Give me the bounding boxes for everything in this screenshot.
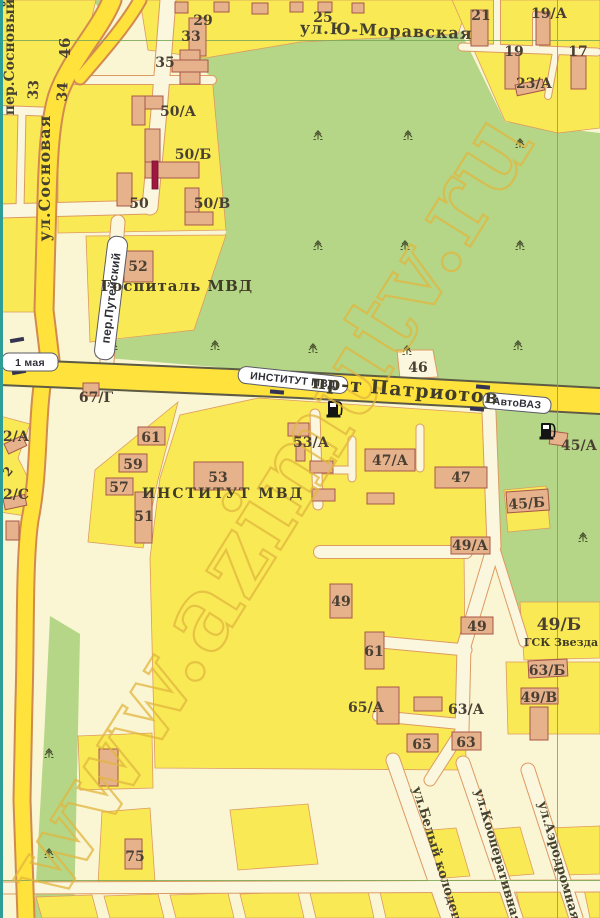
label-25: 25 (313, 10, 332, 26)
building (175, 2, 188, 13)
label-45a: 45/А (561, 438, 598, 454)
label-47a: 47/А (372, 453, 409, 469)
label-59: 59 (123, 457, 142, 473)
block-bottom-strip (240, 892, 304, 918)
label-75: 75 (125, 849, 144, 865)
label-33: 33 (181, 29, 200, 45)
block-bottom-strip (104, 894, 164, 918)
place-label-gsk: ГСК Звезда (524, 636, 598, 649)
building (252, 3, 268, 14)
label-35: 35 (155, 55, 174, 71)
label-19: 19 (504, 44, 523, 60)
street-number-34: 34 (55, 81, 72, 102)
label-50: 50 (129, 196, 149, 212)
label-49-east: 49 (467, 619, 486, 635)
label-51: 51 (134, 509, 153, 525)
building-17 (571, 56, 586, 89)
label-50a: 50/А (160, 104, 197, 120)
building (530, 707, 548, 740)
label-19a: 19/А (531, 6, 568, 22)
label-53: 53 (208, 470, 227, 486)
block-south-2 (230, 804, 318, 870)
city-map: www.azimutv.ru пер.Путейский 1 мая ИНСТИ… (0, 0, 600, 918)
building (214, 2, 229, 12)
label-45b: 45/Б (508, 495, 546, 514)
bus-stop-plate-may1: 1 мая (2, 353, 58, 371)
label-63b: 63/Б (529, 663, 566, 679)
map-viewport: www.azimutv.ru пер.Путейский 1 мая ИНСТИ… (0, 0, 600, 918)
label-65a: 65/А (348, 700, 385, 716)
street-number-33: 33 (26, 80, 43, 100)
label-21: 21 (471, 8, 490, 24)
label-67g: 67/Г (79, 390, 114, 406)
label-23a: 23/А (516, 76, 553, 92)
place-label-institute: ИНСТИТУТ МВД (142, 486, 304, 502)
label-49v: 49/В (521, 690, 558, 706)
label-50b: 50/Б (175, 147, 212, 163)
label-65: 65 (412, 737, 431, 753)
label-47: 47 (451, 470, 470, 486)
label-49-west: 49 (331, 594, 350, 610)
label-49a: 49/А (452, 538, 489, 554)
building (367, 493, 394, 504)
label-29: 29 (193, 13, 212, 29)
street-label-sosnovaya: ул.Сосновая (35, 115, 54, 242)
building-50a-wing (132, 96, 145, 125)
street-label-sosnovy: пер.Сосновый (1, 0, 18, 115)
label-2s: 2/С (3, 487, 29, 503)
building-special (152, 161, 158, 189)
label-17: 17 (568, 44, 587, 60)
building (290, 2, 303, 12)
building-63a (414, 697, 442, 711)
building-35-wing (172, 60, 208, 72)
label-2a: 2/А (3, 429, 30, 445)
building (352, 3, 364, 13)
street-number-46: 46 (56, 38, 74, 59)
label-49b: 49/Б (537, 615, 581, 635)
label-61: 61 (141, 430, 160, 446)
label-63a: 63/А (448, 702, 485, 718)
label-50v: 50/В (194, 196, 231, 212)
label-52: 52 (128, 259, 147, 275)
label-53a: 53/А (293, 435, 330, 451)
block-bottom-strip (170, 893, 234, 918)
place-label-hospital: Госпиталь МВД (101, 277, 253, 295)
svg-text:1 мая: 1 мая (15, 357, 45, 369)
label-46: 46 (408, 360, 427, 376)
label-57: 57 (109, 480, 128, 496)
building-50v-wing (185, 212, 213, 225)
building (6, 521, 19, 540)
label-63: 63 (456, 735, 475, 751)
block-bottom-strip (310, 891, 374, 918)
label-61-south: 61 (364, 644, 383, 660)
